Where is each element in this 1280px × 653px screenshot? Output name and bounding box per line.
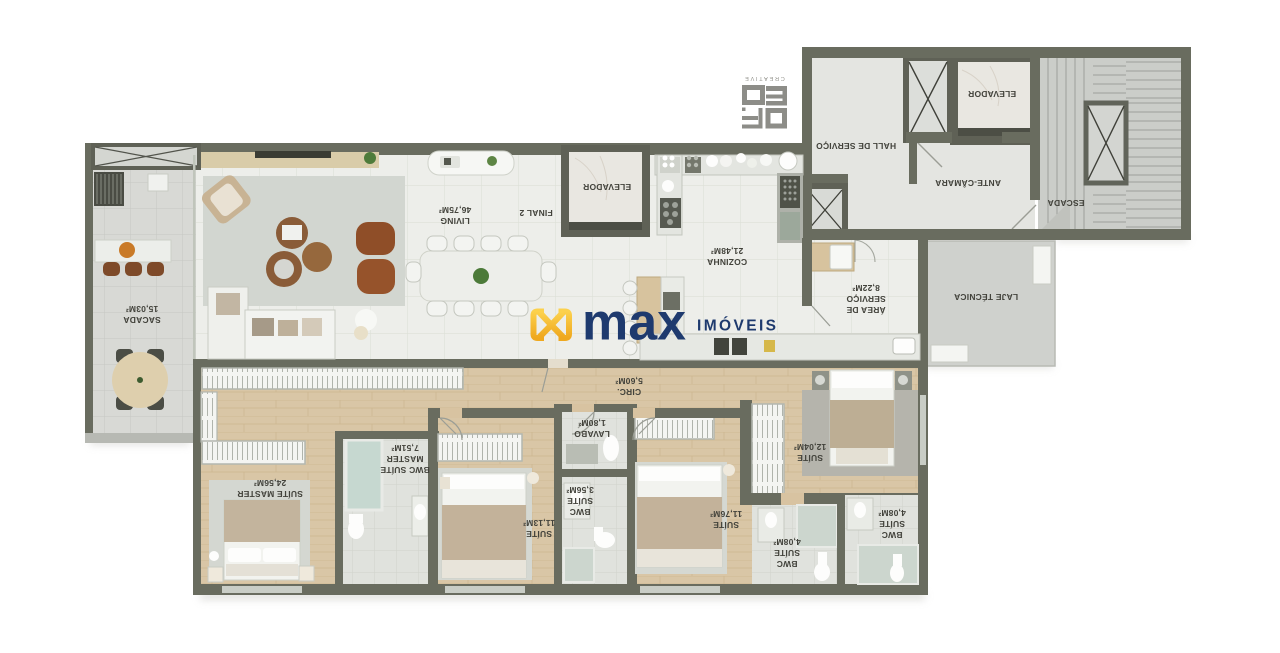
svg-text:5,60M²: 5,60M² <box>615 376 643 386</box>
svg-text:SUÍTE: SUÍTE <box>879 519 905 529</box>
svg-text:SUÍTE MASTER: SUÍTE MASTER <box>237 489 303 499</box>
svg-text:SUÍTE: SUÍTE <box>567 496 593 506</box>
svg-text:11,76M²: 11,76M² <box>710 509 742 519</box>
svg-text:4,08M²: 4,08M² <box>878 508 906 518</box>
svg-text:CIRC.: CIRC. <box>617 387 641 397</box>
svg-text:24,56M²: 24,56M² <box>254 478 287 488</box>
svg-text:FINAL 2: FINAL 2 <box>519 208 552 218</box>
svg-text:15,03M²: 15,03M² <box>126 304 159 314</box>
svg-text:ELEVADOR: ELEVADOR <box>583 182 631 192</box>
svg-text:BWC: BWC <box>882 530 903 540</box>
svg-text:ÁREA DE: ÁREA DE <box>846 305 885 315</box>
svg-text:7,51M²: 7,51M² <box>391 443 419 453</box>
svg-text:11,13M²: 11,13M² <box>523 518 555 528</box>
svg-text:BWC: BWC <box>570 507 591 517</box>
svg-text:12,04M²: 12,04M² <box>794 442 827 452</box>
svg-text:LAJE TÉCNICA: LAJE TÉCNICA <box>954 292 1018 302</box>
svg-text:COZINHA: COZINHA <box>707 257 747 267</box>
svg-text:21,48M²: 21,48M² <box>711 246 744 256</box>
svg-text:46,75M²: 46,75M² <box>439 205 472 215</box>
svg-text:3,56M²: 3,56M² <box>566 485 594 495</box>
svg-text:ANTE-CÂMARA: ANTE-CÂMARA <box>935 178 1001 189</box>
svg-text:SUÍTE: SUÍTE <box>797 453 823 463</box>
svg-text:LIVING: LIVING <box>440 216 470 226</box>
svg-text:IMÓVEIS: IMÓVEIS <box>697 317 778 335</box>
svg-text:LAVABO: LAVABO <box>574 429 610 439</box>
svg-text:max: max <box>582 294 686 352</box>
svg-text:ESCADA: ESCADA <box>1047 198 1084 208</box>
svg-text:1,80M²: 1,80M² <box>578 418 606 428</box>
svg-text:BWC SUÍTE: BWC SUÍTE <box>380 465 430 475</box>
svg-text:SUÍTE: SUÍTE <box>774 548 800 558</box>
svg-text:4,08M²: 4,08M² <box>773 537 801 547</box>
svg-text:ELEVADOR: ELEVADOR <box>968 89 1016 99</box>
svg-text:SUÍTE: SUÍTE <box>526 529 552 539</box>
svg-text:CREATIVE: CREATIVE <box>743 75 785 81</box>
svg-text:SERVIÇO: SERVIÇO <box>846 294 886 304</box>
svg-text:BWC: BWC <box>777 559 798 569</box>
svg-text:HALL DE SERVIÇO: HALL DE SERVIÇO <box>816 141 896 151</box>
svg-text:8,22M²: 8,22M² <box>852 283 880 293</box>
svg-text:SUÍTE: SUÍTE <box>713 520 739 530</box>
svg-text:SACADA: SACADA <box>123 315 161 325</box>
svg-text:MASTER: MASTER <box>386 454 423 464</box>
